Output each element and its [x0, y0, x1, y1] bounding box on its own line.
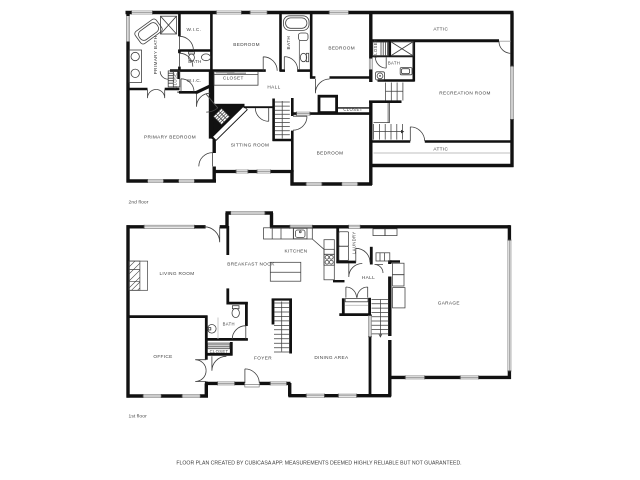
- svg-text:BATH: BATH: [188, 59, 202, 64]
- svg-text:BEDROOM: BEDROOM: [317, 151, 344, 156]
- svg-text:ATTIC: ATTIC: [433, 27, 448, 32]
- svg-text:W.I.C.: W.I.C.: [187, 78, 202, 83]
- svg-text:GARAGE: GARAGE: [438, 300, 460, 305]
- svg-text:BATH: BATH: [388, 61, 400, 66]
- svg-text:KITCHEN: KITCHEN: [284, 248, 307, 253]
- svg-text:BATH: BATH: [223, 322, 235, 327]
- svg-text:PRIMARY BEDROOM: PRIMARY BEDROOM: [144, 134, 196, 139]
- svg-text:FLOOR PLAN CREATED BY CUBICASA: FLOOR PLAN CREATED BY CUBICASA APP. MEAS…: [176, 460, 461, 466]
- svg-text:2nd floor: 2nd floor: [129, 200, 149, 206]
- svg-text:DINING AREA: DINING AREA: [314, 355, 349, 360]
- svg-text:PRIMARY BATH: PRIMARY BATH: [153, 36, 158, 75]
- svg-text:BEDROOM: BEDROOM: [233, 42, 260, 47]
- svg-text:W.I.C.: W.I.C.: [186, 27, 201, 32]
- svg-text:1st floor: 1st floor: [129, 414, 148, 420]
- svg-text:LAUNDRY: LAUNDRY: [352, 232, 357, 254]
- svg-text:FOYER: FOYER: [254, 356, 272, 361]
- svg-text:CLOSET: CLOSET: [373, 39, 378, 58]
- svg-text:HALL: HALL: [267, 85, 280, 90]
- svg-text:BREAKFAST NOOK: BREAKFAST NOOK: [227, 262, 275, 267]
- svg-text:HALL: HALL: [362, 275, 375, 280]
- svg-text:OFFICE: OFFICE: [153, 354, 172, 359]
- svg-text:BEDROOM: BEDROOM: [328, 46, 355, 51]
- svg-text:ATTIC: ATTIC: [433, 147, 448, 152]
- svg-text:SITTING ROOM: SITTING ROOM: [231, 143, 270, 148]
- svg-text:CLOSET: CLOSET: [343, 107, 362, 112]
- svg-text:LIVING ROOM: LIVING ROOM: [159, 271, 194, 276]
- svg-text:CLOSET: CLOSET: [223, 75, 244, 80]
- svg-text:BATH: BATH: [286, 36, 291, 50]
- svg-text:RECREATION ROOM: RECREATION ROOM: [439, 90, 491, 95]
- svg-text:CLOSET: CLOSET: [210, 349, 229, 354]
- svg-text:CLOSET: CLOSET: [173, 70, 178, 89]
